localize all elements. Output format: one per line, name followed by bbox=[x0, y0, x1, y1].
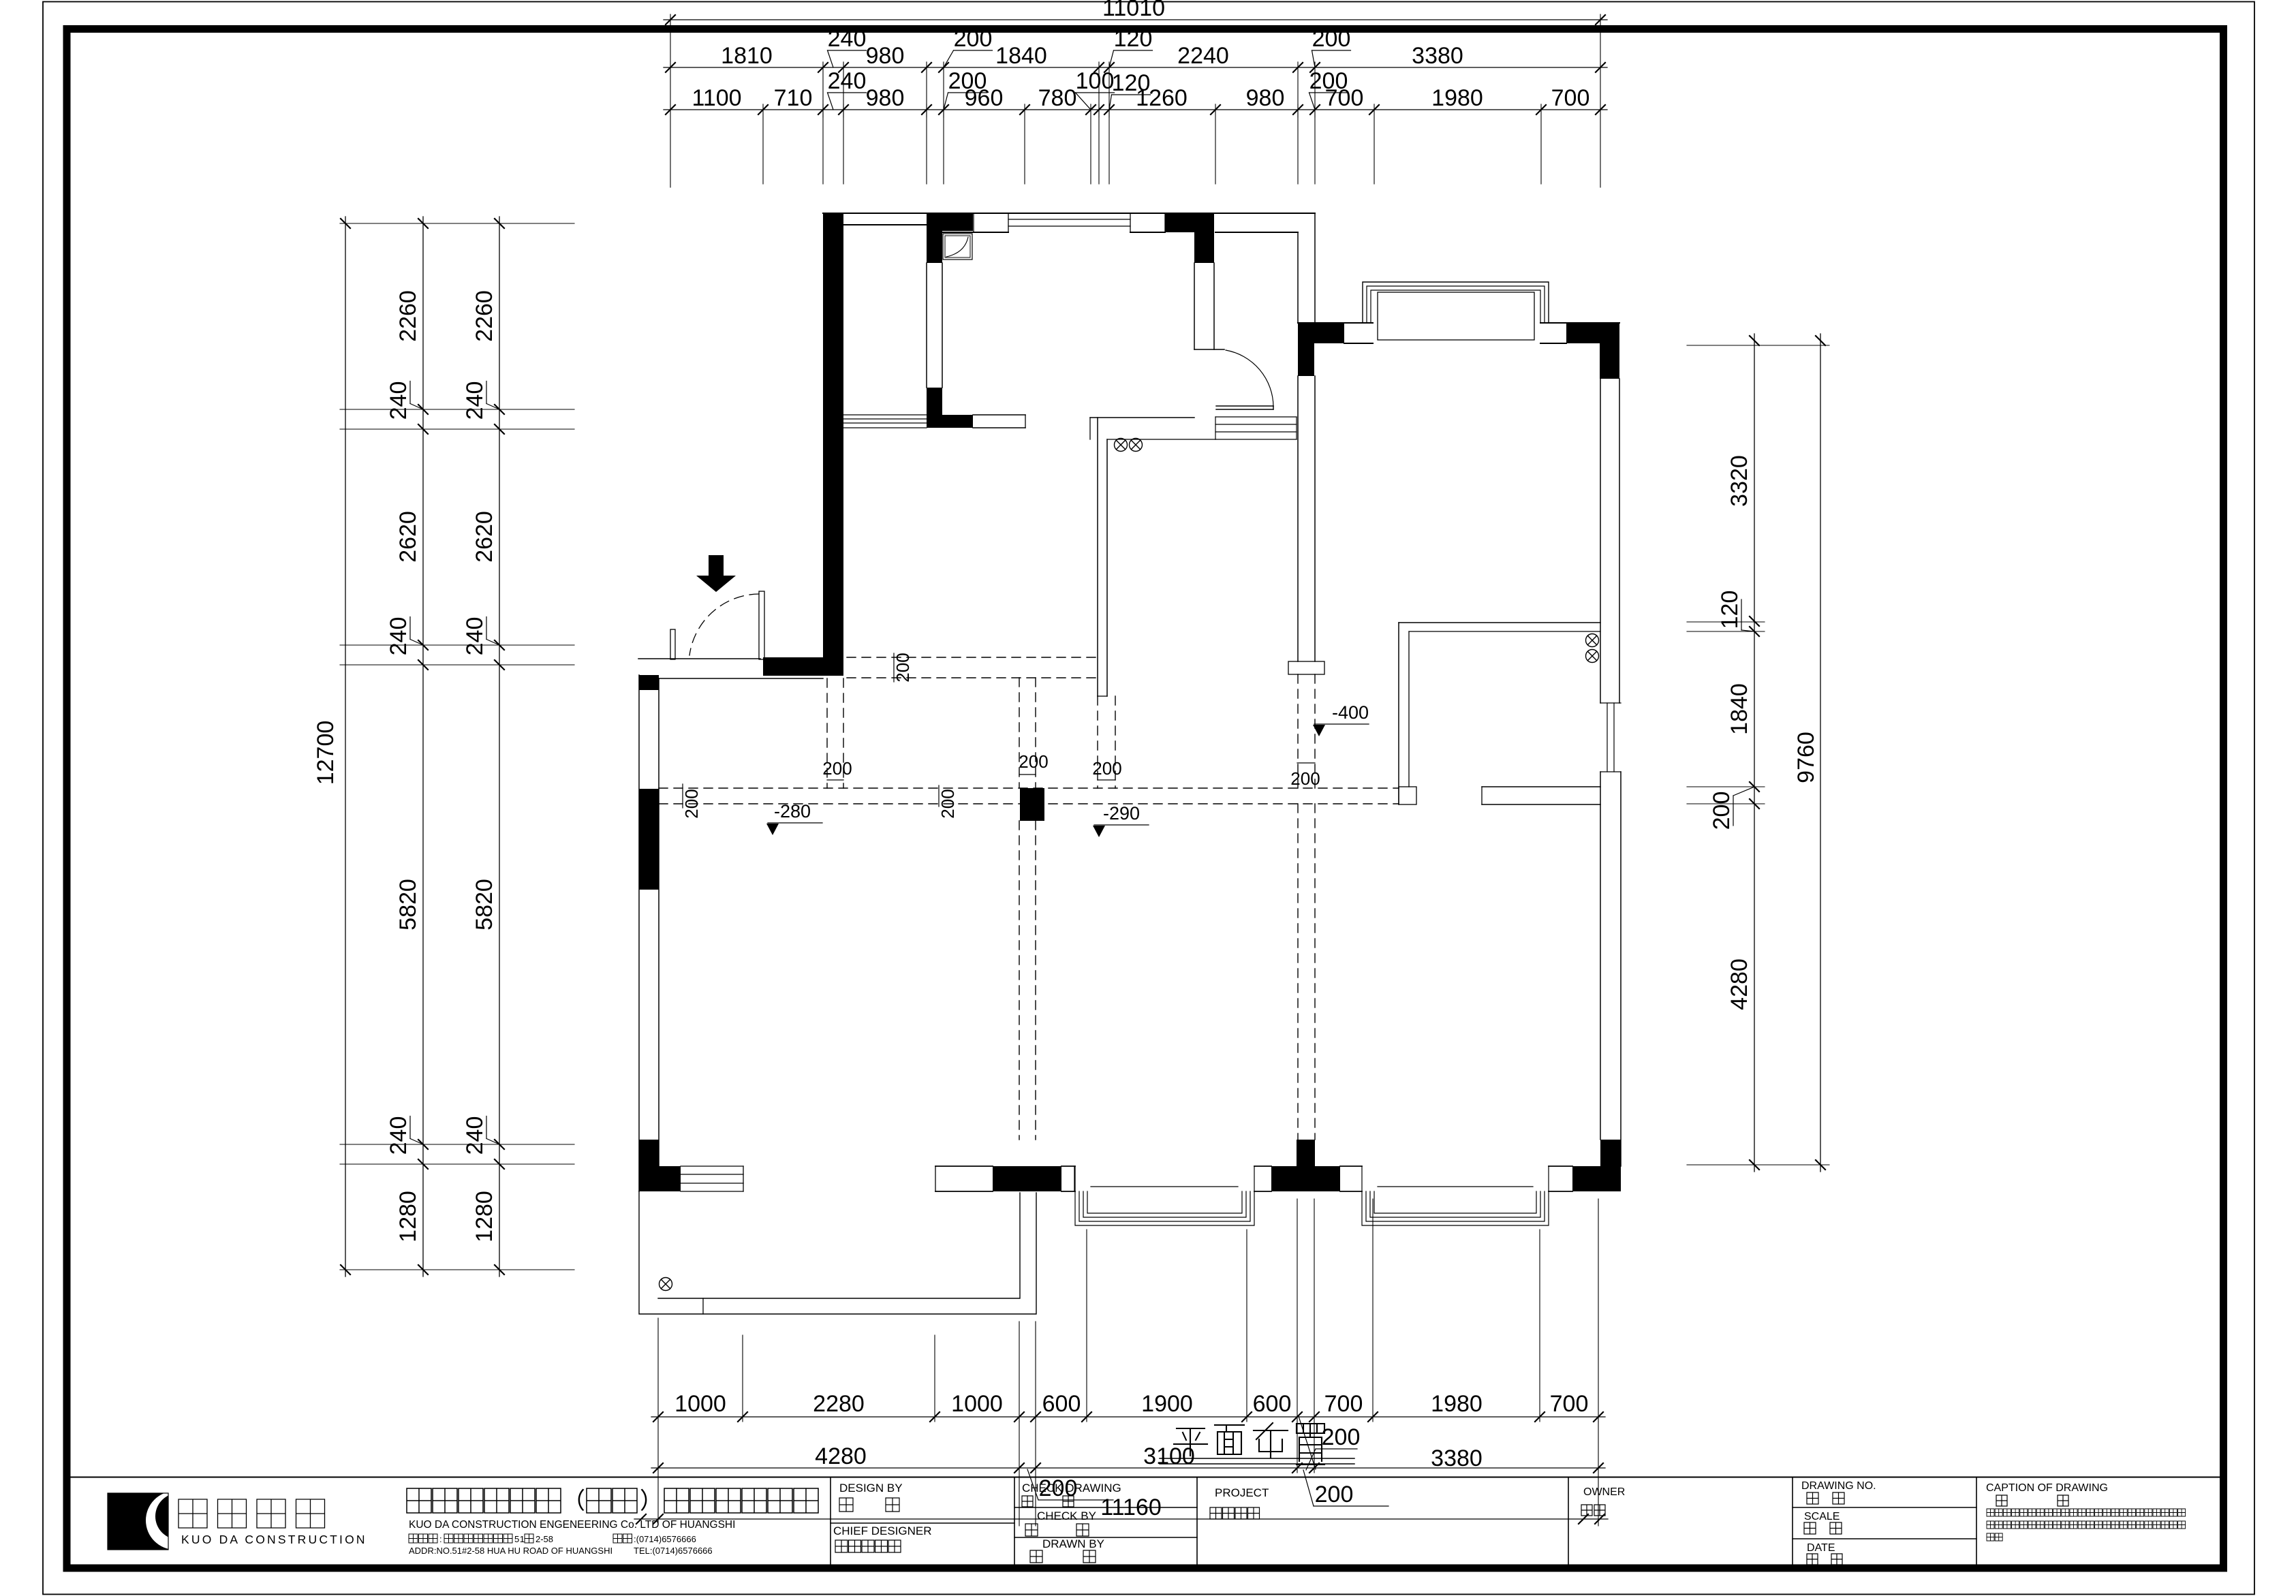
svg-text:5820: 5820 bbox=[395, 879, 421, 930]
svg-text:200: 200 bbox=[1019, 751, 1048, 772]
svg-text:1100: 1100 bbox=[692, 85, 741, 111]
svg-text:KUO DA CONSTRUCTION: KUO DA CONSTRUCTION bbox=[181, 1533, 367, 1546]
svg-text:51: 51 bbox=[514, 1534, 525, 1544]
svg-text:700: 700 bbox=[1324, 1391, 1363, 1417]
svg-text:2260: 2260 bbox=[471, 290, 497, 342]
svg-text:2240: 2240 bbox=[1177, 43, 1229, 69]
svg-text:780: 780 bbox=[1038, 85, 1077, 111]
svg-text:200: 200 bbox=[1309, 68, 1348, 94]
svg-text:980: 980 bbox=[866, 43, 905, 69]
svg-text::(0714)6576666: :(0714)6576666 bbox=[634, 1534, 696, 1544]
svg-text:）: ） bbox=[640, 1488, 663, 1514]
svg-text:2280: 2280 bbox=[813, 1391, 865, 1417]
svg-text:1000: 1000 bbox=[674, 1391, 726, 1417]
svg-text:700: 700 bbox=[1551, 85, 1590, 111]
svg-text:4280: 4280 bbox=[815, 1443, 867, 1469]
svg-text:1280: 1280 bbox=[471, 1191, 497, 1242]
svg-text:CAPTION OF DRAWING: CAPTION OF DRAWING bbox=[1986, 1482, 2108, 1494]
svg-text:240: 240 bbox=[828, 68, 867, 94]
svg-text:1840: 1840 bbox=[1726, 683, 1752, 735]
svg-text:200: 200 bbox=[954, 26, 993, 52]
svg-text:240: 240 bbox=[386, 1116, 412, 1155]
svg-text:700: 700 bbox=[1550, 1391, 1589, 1417]
svg-text:240: 240 bbox=[462, 381, 488, 420]
svg-text:DRAWN BY: DRAWN BY bbox=[1042, 1537, 1104, 1550]
svg-text:200: 200 bbox=[1290, 768, 1320, 789]
svg-text::: : bbox=[439, 1534, 442, 1544]
svg-text:DATE: DATE bbox=[1807, 1542, 1835, 1554]
svg-text:2620: 2620 bbox=[471, 511, 497, 563]
svg-text:200: 200 bbox=[948, 68, 987, 94]
svg-text:3100: 3100 bbox=[1143, 1443, 1195, 1469]
svg-text:（: （ bbox=[562, 1488, 585, 1514]
svg-text:1810: 1810 bbox=[721, 43, 773, 69]
svg-text:200: 200 bbox=[1092, 758, 1121, 779]
svg-text:200: 200 bbox=[893, 653, 913, 682]
svg-text:PROJECT: PROJECT bbox=[1215, 1486, 1269, 1499]
svg-text:OWNER: OWNER bbox=[1583, 1486, 1625, 1498]
svg-text:1900: 1900 bbox=[1141, 1391, 1193, 1417]
svg-text:240: 240 bbox=[828, 26, 867, 52]
svg-text:200: 200 bbox=[1312, 26, 1351, 52]
svg-text:1980: 1980 bbox=[1431, 1391, 1483, 1417]
svg-text:1000: 1000 bbox=[951, 1391, 1003, 1417]
svg-text:2620: 2620 bbox=[395, 511, 421, 563]
svg-text:4280: 4280 bbox=[1726, 958, 1752, 1010]
svg-text:240: 240 bbox=[462, 617, 488, 656]
svg-text:ADDR:NO.51#2-58 HUA HU ROAD OF: ADDR:NO.51#2-58 HUA HU ROAD OF HUANGSHI bbox=[409, 1546, 612, 1556]
svg-text:240: 240 bbox=[386, 617, 412, 656]
svg-text:CHECK DRAWING: CHECK DRAWING bbox=[1022, 1482, 1121, 1495]
svg-text:2-58: 2-58 bbox=[536, 1534, 553, 1544]
svg-text:12700: 12700 bbox=[313, 721, 339, 785]
svg-text:-280: -280 bbox=[774, 801, 811, 822]
svg-text:1980: 1980 bbox=[1431, 85, 1483, 111]
svg-text:3320: 3320 bbox=[1726, 455, 1752, 507]
svg-text:3380: 3380 bbox=[1412, 43, 1463, 69]
svg-text:9760: 9760 bbox=[1793, 732, 1819, 783]
svg-text:240: 240 bbox=[462, 1116, 488, 1155]
svg-text:200: 200 bbox=[937, 789, 958, 818]
svg-text:SCALE: SCALE bbox=[1804, 1511, 1840, 1522]
svg-text:200: 200 bbox=[681, 789, 702, 818]
svg-text:DRAWING NO.: DRAWING NO. bbox=[1801, 1480, 1876, 1492]
svg-text:120: 120 bbox=[1717, 591, 1743, 629]
svg-text:TEL:(0714)6576666: TEL:(0714)6576666 bbox=[634, 1546, 713, 1556]
svg-text:100: 100 bbox=[1076, 68, 1115, 94]
svg-text:120: 120 bbox=[1114, 26, 1153, 52]
svg-text:1840: 1840 bbox=[995, 43, 1047, 69]
svg-text:600: 600 bbox=[1253, 1391, 1292, 1417]
svg-text:CHECK BY: CHECK BY bbox=[1037, 1509, 1096, 1522]
svg-text:2260: 2260 bbox=[395, 290, 421, 342]
svg-text:DESIGN BY: DESIGN BY bbox=[839, 1482, 903, 1495]
svg-text:710: 710 bbox=[774, 85, 813, 111]
svg-text:980: 980 bbox=[866, 85, 905, 111]
svg-text:-290: -290 bbox=[1103, 803, 1140, 824]
svg-text:1280: 1280 bbox=[395, 1191, 421, 1242]
svg-text:KUO DA CONSTRUCTION ENGENEERIN: KUO DA CONSTRUCTION ENGENEERING Co. LTD … bbox=[409, 1519, 735, 1531]
svg-text:3380: 3380 bbox=[1431, 1445, 1483, 1471]
svg-text:200: 200 bbox=[1322, 1424, 1361, 1450]
svg-text:600: 600 bbox=[1042, 1391, 1081, 1417]
svg-text:11010: 11010 bbox=[1102, 0, 1165, 21]
svg-text:120: 120 bbox=[1112, 70, 1151, 96]
svg-text:-400: -400 bbox=[1332, 702, 1369, 723]
svg-text:980: 980 bbox=[1246, 85, 1285, 111]
svg-text:240: 240 bbox=[386, 381, 412, 420]
svg-text:CHIEF DESIGNER: CHIEF DESIGNER bbox=[833, 1524, 932, 1537]
svg-text:5820: 5820 bbox=[471, 879, 497, 930]
svg-text:200: 200 bbox=[1709, 792, 1735, 830]
svg-text:200: 200 bbox=[1315, 1482, 1354, 1507]
